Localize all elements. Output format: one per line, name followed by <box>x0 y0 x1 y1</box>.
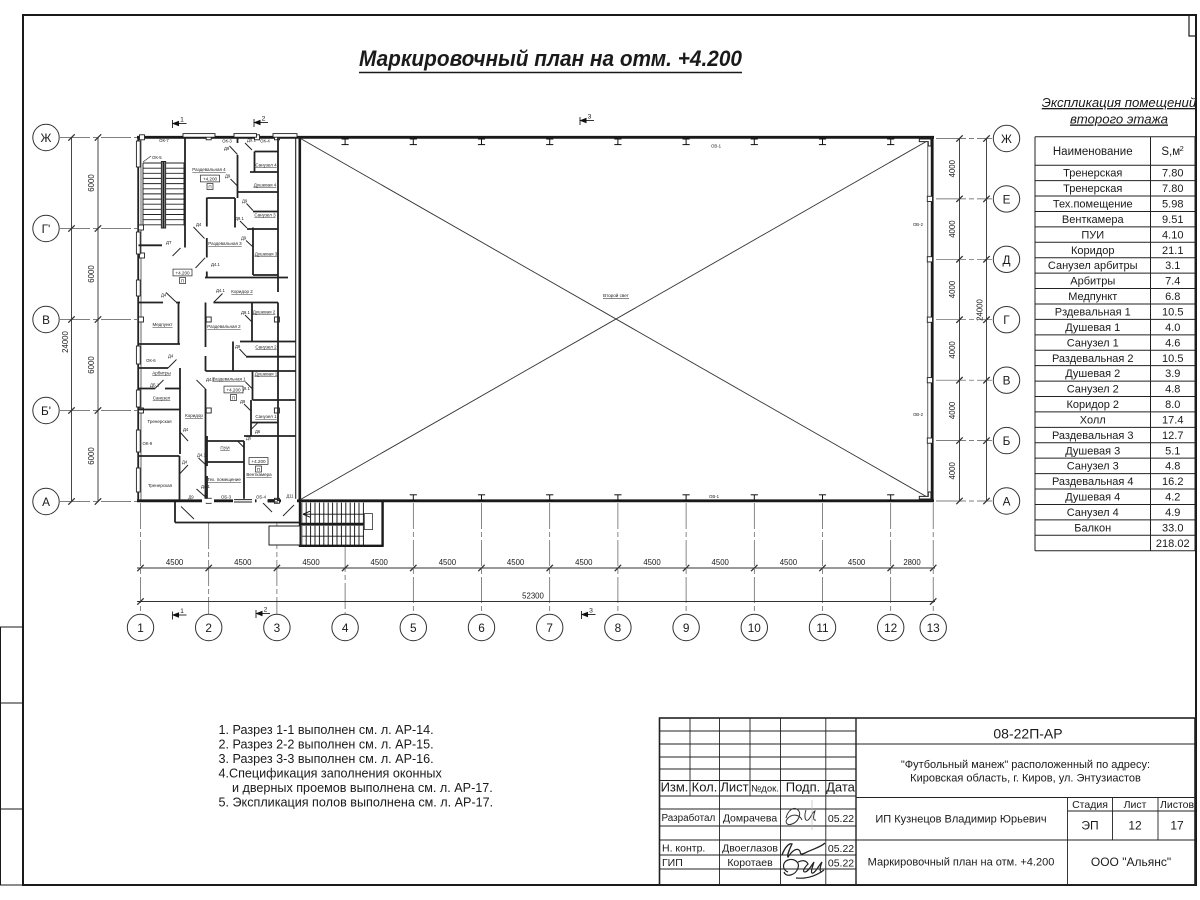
svg-text:А: А <box>42 495 50 509</box>
svg-text:ОК-4: ОК-4 <box>260 139 270 144</box>
svg-text:Д9: Д9 <box>225 174 231 179</box>
svg-text:4500: 4500 <box>439 558 457 567</box>
svg-text:4000: 4000 <box>948 220 957 238</box>
svg-text:5. Экспликация полов выполнена: 5. Экспликация полов выполнена см. л. АР… <box>219 796 494 810</box>
svg-text:Д11: Д11 <box>286 494 294 499</box>
svg-text:4000: 4000 <box>948 280 957 298</box>
svg-text:Двоеглазов: Двоеглазов <box>722 843 778 855</box>
svg-text:9.51: 9.51 <box>1162 214 1183 226</box>
svg-text:Д4: Д4 <box>161 293 167 298</box>
svg-text:2800: 2800 <box>903 558 921 567</box>
svg-text:Ж: Ж <box>1001 132 1012 146</box>
svg-text:11: 11 <box>816 621 828 635</box>
svg-text:Душевая 4: Душевая 4 <box>1065 492 1120 504</box>
svg-text:Стадия: Стадия <box>1072 799 1108 811</box>
svg-text:5.1: 5.1 <box>1165 445 1180 457</box>
svg-text:Д9.1: Д9.1 <box>247 138 256 143</box>
svg-text:6: 6 <box>478 621 485 635</box>
svg-text:3. Разрез 3-3 выполнен см. л.: 3. Разрез 3-3 выполнен см. л. АР-16. <box>219 752 434 766</box>
svg-text:№док.: №док. <box>751 784 779 795</box>
svg-text:10: 10 <box>748 621 762 635</box>
svg-text:Тех.помещение: Тех.помещение <box>1053 199 1133 211</box>
svg-text:+4.200: +4.200 <box>251 459 266 464</box>
svg-text:Раздевальная 3: Раздевальная 3 <box>208 241 242 246</box>
svg-text:12.7: 12.7 <box>1162 430 1183 442</box>
svg-text:Д9: Д9 <box>240 399 246 404</box>
svg-text:ОВ-1: ОВ-1 <box>709 494 720 499</box>
svg-text:2: 2 <box>262 116 266 123</box>
svg-text:7: 7 <box>546 621 553 635</box>
svg-text:Экспликация помещений: Экспликация помещений <box>1042 95 1197 110</box>
svg-text:В: В <box>1003 374 1011 388</box>
svg-text:S,м: S,м <box>1161 146 1180 158</box>
svg-text:ОК-6: ОК-6 <box>146 358 156 363</box>
svg-text:4.Спецификация заполнения окон: 4.Спецификация заполнения оконных <box>219 767 443 781</box>
svg-text:4.8: 4.8 <box>1165 384 1180 396</box>
svg-text:Санузел 1: Санузел 1 <box>1067 337 1119 349</box>
svg-text:4000: 4000 <box>948 461 957 479</box>
svg-text:Д9: Д9 <box>188 495 194 500</box>
svg-text:4.6: 4.6 <box>1165 337 1180 349</box>
svg-text:Тех. помещение: Тех. помещение <box>207 477 241 482</box>
svg-text:6000: 6000 <box>87 265 96 283</box>
svg-text:4500: 4500 <box>712 558 730 567</box>
svg-text:Д9: Д9 <box>224 146 230 151</box>
svg-text:ОК-9: ОК-9 <box>143 441 153 446</box>
svg-text:4000: 4000 <box>948 341 957 359</box>
svg-text:Душевая 2: Душевая 2 <box>1065 368 1120 380</box>
svg-text:4.9: 4.9 <box>1165 507 1180 519</box>
svg-text:+4.200: +4.200 <box>175 271 190 276</box>
svg-text:Коридор 2: Коридор 2 <box>1066 399 1119 411</box>
svg-text:Тренерская: Тренерская <box>148 483 173 488</box>
svg-text:05.22: 05.22 <box>828 843 854 855</box>
svg-text:Д4.1: Д4.1 <box>211 262 220 267</box>
svg-text:3.1: 3.1 <box>1165 260 1180 272</box>
svg-text:4.2: 4.2 <box>1165 492 1180 504</box>
svg-text:второго этажа: второго этажа <box>1070 112 1168 127</box>
svg-text:4500: 4500 <box>371 558 389 567</box>
svg-text:2: 2 <box>264 607 268 614</box>
svg-text:Холл: Холл <box>1080 414 1106 426</box>
svg-text:Наименование: Наименование <box>1053 146 1133 158</box>
svg-text:1: 1 <box>180 608 184 615</box>
svg-text:Д4: Д4 <box>196 222 202 227</box>
svg-text:Д4: Д4 <box>183 427 189 432</box>
svg-text:Тренерская: Тренерская <box>147 419 172 424</box>
svg-text:Балкон: Балкон <box>1074 522 1111 534</box>
svg-text:Д6: Д6 <box>255 429 261 434</box>
svg-text:Кировская область, г. Киров, у: Кировская область, г. Киров, ул. Энтузиа… <box>910 773 1141 785</box>
svg-text:3: 3 <box>274 621 281 635</box>
svg-text:+4.200: +4.200 <box>226 388 241 393</box>
svg-text:21.1: 21.1 <box>1162 245 1183 257</box>
svg-text:17.4: 17.4 <box>1162 414 1183 426</box>
svg-text:Санузел 4: Санузел 4 <box>1067 507 1119 519</box>
svg-text:4.10: 4.10 <box>1162 229 1183 241</box>
svg-text:ООО "Альянс": ООО "Альянс" <box>1091 855 1171 869</box>
svg-text:4500: 4500 <box>302 558 320 567</box>
svg-text:8: 8 <box>615 621 622 635</box>
svg-text:Д4.1: Д4.1 <box>201 484 210 489</box>
svg-text:Коридор: Коридор <box>185 413 203 418</box>
svg-text:6000: 6000 <box>87 174 96 192</box>
svg-text:08-22П-АР: 08-22П-АР <box>993 726 1062 742</box>
svg-text:Раздевальная 2: Раздевальная 2 <box>207 324 241 329</box>
svg-text:1: 1 <box>180 117 184 124</box>
svg-text:4500: 4500 <box>643 558 661 567</box>
svg-text:Лист: Лист <box>1124 799 1147 811</box>
svg-text:7.4: 7.4 <box>1165 276 1180 288</box>
svg-text:4000: 4000 <box>948 159 957 177</box>
svg-text:Н. контр.: Н. контр. <box>662 843 705 855</box>
svg-text:"Футбольный манеж" расположенн: "Футбольный манеж" расположенный по адре… <box>901 759 1150 771</box>
svg-text:4500: 4500 <box>166 558 184 567</box>
svg-text:4500: 4500 <box>575 558 593 567</box>
svg-text:Д9: Д9 <box>241 236 247 241</box>
svg-text:П: П <box>181 278 184 283</box>
svg-text:4000: 4000 <box>948 401 957 419</box>
svg-text:Душевая 3: Душевая 3 <box>1065 445 1120 457</box>
svg-text:9: 9 <box>683 621 690 635</box>
svg-text:5: 5 <box>410 621 417 635</box>
svg-text:ОК-7: ОК-7 <box>159 138 169 143</box>
svg-text:7.80: 7.80 <box>1162 183 1183 195</box>
svg-text:3: 3 <box>589 608 593 615</box>
svg-text:Домрачева: Домрачева <box>723 813 778 825</box>
svg-text:Разработал: Разработал <box>662 813 716 824</box>
svg-text:52300: 52300 <box>522 592 544 601</box>
svg-text:+4.200: +4.200 <box>203 177 218 182</box>
svg-text:ОК-5: ОК-5 <box>152 155 162 160</box>
svg-text:6000: 6000 <box>87 447 96 465</box>
svg-text:Тренерская: Тренерская <box>1063 168 1122 180</box>
svg-text:Лист: Лист <box>720 780 748 795</box>
svg-text:2. Разрез 2-2 выполнен см. л.: 2. Разрез 2-2 выполнен см. л. АР-15. <box>219 738 434 752</box>
svg-text:Санузел 4: Санузел 4 <box>255 163 277 168</box>
svg-text:Д4: Д4 <box>182 460 188 465</box>
svg-text:05.22: 05.22 <box>828 813 854 825</box>
svg-text:ДБ.1: ДБ.1 <box>150 383 160 388</box>
svg-text:Венткамера: Венткамера <box>246 472 272 477</box>
svg-text:ОВ-2: ОВ-2 <box>913 412 924 417</box>
svg-text:Листов: Листов <box>1160 799 1195 811</box>
svg-text:Раздевальная 2: Раздевальная 2 <box>1052 353 1134 365</box>
svg-text:1: 1 <box>137 621 144 635</box>
svg-text:Дата: Дата <box>826 780 856 795</box>
svg-text:Медпункт: Медпункт <box>1068 291 1117 303</box>
svg-text:Второй свет: Второй свет <box>603 292 630 298</box>
svg-text:4.0: 4.0 <box>1165 322 1180 334</box>
svg-text:Раздевальная 4: Раздевальная 4 <box>192 167 226 172</box>
svg-text:Б: Б <box>1003 434 1011 448</box>
svg-text:6.8: 6.8 <box>1165 291 1180 303</box>
svg-text:Душевая 4: Душевая 4 <box>254 183 277 188</box>
svg-text:12: 12 <box>1128 819 1142 833</box>
svg-text:Е: Е <box>1003 192 1011 206</box>
svg-text:ПУИ: ПУИ <box>1081 229 1104 241</box>
svg-text:Душевая 2: Душевая 2 <box>253 310 276 315</box>
svg-text:ОБ-3: ОБ-3 <box>221 495 232 500</box>
svg-text:Ж: Ж <box>41 131 52 145</box>
svg-text:ОВ-1: ОВ-1 <box>711 144 722 149</box>
svg-text:Раздевальная 4: Раздевальная 4 <box>1052 476 1134 488</box>
svg-text:Душевая 1: Душевая 1 <box>1065 322 1120 334</box>
svg-text:Санузел 2: Санузел 2 <box>1067 384 1119 396</box>
svg-text:Коридор 2: Коридор 2 <box>231 289 253 294</box>
svg-text:Арбитры: Арбитры <box>1070 276 1115 288</box>
svg-text:4500: 4500 <box>507 558 525 567</box>
svg-text:3: 3 <box>588 114 592 121</box>
svg-text:ОВ-2: ОВ-2 <box>913 222 924 227</box>
svg-text:Д6: Д6 <box>246 436 252 441</box>
svg-text:24000: 24000 <box>976 298 985 320</box>
svg-text:3.9: 3.9 <box>1165 368 1180 380</box>
svg-text:Д4.1: Д4.1 <box>216 288 225 293</box>
svg-text:24000: 24000 <box>61 330 70 352</box>
svg-text:Г: Г <box>1003 313 1010 327</box>
svg-text:Арбитры: Арбитры <box>152 371 170 376</box>
svg-text:Маркировочный план на отм. +4.: Маркировочный план на отм. +4.200 <box>359 46 743 71</box>
svg-text:05.22: 05.22 <box>828 858 854 870</box>
svg-text:5.98: 5.98 <box>1162 199 1183 211</box>
svg-text:Рздевальная 1: Рздевальная 1 <box>1055 307 1131 319</box>
svg-text:Д9: Д9 <box>242 199 248 204</box>
svg-text:Санузел 3: Санузел 3 <box>1067 461 1119 473</box>
svg-text:Д9.1: Д9.1 <box>235 216 244 221</box>
svg-text:Медпункт: Медпункт <box>152 322 172 327</box>
svg-text:и дверных проемов выполнена см: и дверных проемов выполнена см. л. АР-17… <box>232 781 493 795</box>
svg-text:ИП Кузнецов Владимир Юрьевич: ИП Кузнецов Владимир Юрьевич <box>875 814 1046 826</box>
svg-text:П: П <box>208 184 211 189</box>
svg-text:Коридор: Коридор <box>1071 245 1114 257</box>
svg-text:Подп.: Подп. <box>786 780 821 795</box>
svg-text:8.0: 8.0 <box>1165 399 1180 411</box>
svg-text:ЭП: ЭП <box>1081 819 1098 833</box>
svg-text:ОБ-4: ОБ-4 <box>256 495 267 500</box>
svg-text:Санузел арбитры: Санузел арбитры <box>1048 260 1138 272</box>
svg-text:33.0: 33.0 <box>1162 522 1183 534</box>
svg-text:Коротаев: Коротаев <box>727 857 773 869</box>
svg-text:Санузел 3: Санузел 3 <box>254 213 276 218</box>
svg-text:218.02: 218.02 <box>1156 538 1190 550</box>
svg-text:Маркировочный план на отм. +4.: Маркировочный план на отм. +4.200 <box>868 857 1055 869</box>
svg-text:2: 2 <box>1180 144 1184 153</box>
svg-text:А: А <box>1003 495 1011 509</box>
svg-text:Д4.1: Д4.1 <box>197 453 206 458</box>
svg-text:Д9.1: Д9.1 <box>241 310 250 315</box>
svg-text:16.2: 16.2 <box>1162 476 1183 488</box>
svg-text:Раздевальная 1: Раздевальная 1 <box>212 377 246 382</box>
svg-text:12: 12 <box>884 621 897 635</box>
svg-text:Кол.: Кол. <box>692 780 718 795</box>
svg-text:4: 4 <box>342 621 349 635</box>
svg-text:4500: 4500 <box>234 558 252 567</box>
svg-text:13: 13 <box>927 621 941 635</box>
svg-text:Душевая 1: Душевая 1 <box>255 372 278 377</box>
svg-text:2: 2 <box>205 621 212 635</box>
svg-text:1. Разрез 1-1 выполнен см. л.: 1. Разрез 1-1 выполнен см. л. АР-14. <box>219 723 434 737</box>
svg-text:Душевая 3: Душевая 3 <box>255 252 278 257</box>
svg-text:Санузел: Санузел <box>153 396 171 401</box>
svg-text:7.80: 7.80 <box>1162 168 1183 180</box>
svg-text:ДТ: ДТ <box>166 240 172 245</box>
svg-text:10.5: 10.5 <box>1162 353 1183 365</box>
svg-text:6000: 6000 <box>87 356 96 374</box>
svg-text:Санузел 2: Санузел 2 <box>255 345 277 350</box>
svg-text:Санузел 1: Санузел 1 <box>255 414 277 419</box>
svg-text:Изм.: Изм. <box>661 780 689 795</box>
svg-text:4.8: 4.8 <box>1165 461 1180 473</box>
svg-text:Б': Б' <box>41 404 51 418</box>
svg-text:Д: Д <box>1003 253 1011 267</box>
svg-text:10.5: 10.5 <box>1162 307 1183 319</box>
svg-text:4500: 4500 <box>780 558 798 567</box>
svg-text:П: П <box>257 467 260 472</box>
svg-text:4500: 4500 <box>848 558 866 567</box>
svg-text:Д9: Д9 <box>235 344 241 349</box>
svg-text:Раздевальная 3: Раздевальная 3 <box>1052 430 1134 442</box>
svg-text:ОК-3: ОК-3 <box>222 139 232 144</box>
svg-text:17: 17 <box>1170 819 1184 833</box>
svg-text:ГИП: ГИП <box>662 857 683 869</box>
svg-text:Венткамера: Венткамера <box>1062 214 1125 226</box>
svg-text:Тренерская: Тренерская <box>1063 183 1122 195</box>
svg-text:П: П <box>232 395 235 400</box>
svg-text:ПУИ: ПУИ <box>220 446 229 451</box>
svg-text:В: В <box>42 313 50 327</box>
svg-text:Г': Г' <box>42 222 51 236</box>
svg-text:Д4: Д4 <box>168 354 174 359</box>
